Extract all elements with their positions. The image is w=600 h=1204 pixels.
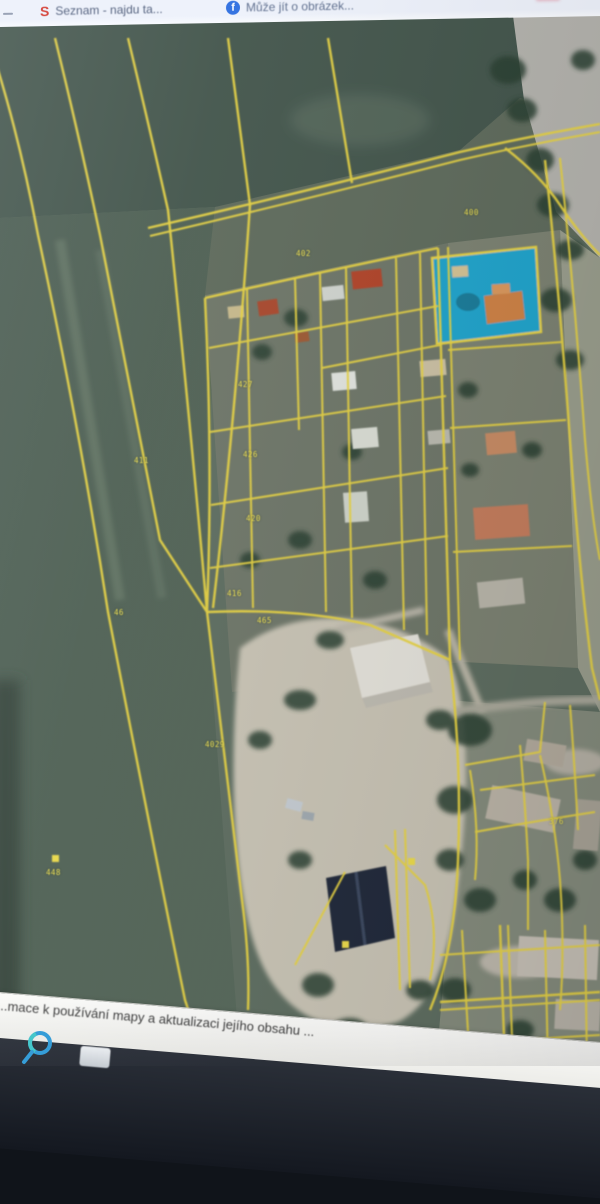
tab-title: Seznam - najdu ta... [55,2,162,18]
tab-seznam[interactable]: S Seznam - najdu ta... [40,0,163,23]
tab-facebook[interactable]: f Může jít o obrázek... [226,0,354,20]
tab-remnant-mark [536,0,560,1]
map-canvas[interactable] [0,0,600,1066]
seznam-icon: S [40,4,49,18]
tab-title: Může jít o obrázek... [246,0,354,14]
tab-overflow-dash [3,13,13,15]
search-icon[interactable] [18,1027,58,1067]
facebook-icon: f [226,1,240,15]
app-tile-icon[interactable] [79,1046,111,1069]
